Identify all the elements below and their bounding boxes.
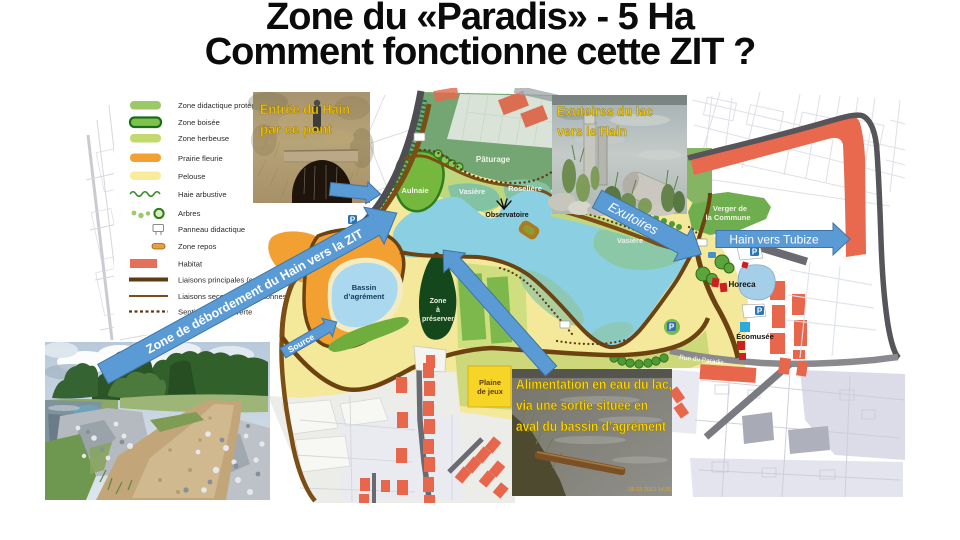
svg-text:Écomusée: Écomusée	[736, 332, 774, 341]
svg-text:06 03 2012 14:25: 06 03 2012 14:25	[629, 487, 672, 493]
svg-text:Pelouse: Pelouse	[178, 172, 205, 181]
svg-text:Vasière: Vasière	[459, 187, 485, 196]
svg-text:préserver: préserver	[422, 316, 454, 323]
svg-text:Bassin: Bassin	[352, 283, 377, 292]
svg-text:vers le Hain: vers le Hain	[557, 123, 627, 139]
svg-text:P: P	[752, 248, 758, 257]
svg-text:Plaine: Plaine	[479, 378, 501, 387]
svg-text:Prairie fleurie: Prairie fleurie	[178, 154, 223, 163]
svg-text:Zone boisée: Zone boisée	[178, 118, 220, 127]
svg-text:Horeca: Horeca	[728, 280, 756, 289]
svg-text:Zone repos: Zone repos	[178, 242, 217, 251]
svg-text:à: à	[436, 307, 440, 314]
svg-text:la Commune: la Commune	[705, 213, 750, 222]
svg-text:Observatoire: Observatoire	[485, 212, 528, 219]
svg-text:Roselière: Roselière	[508, 184, 542, 193]
svg-text:par ce pont: par ce pont	[260, 121, 332, 137]
svg-text:via une sortie située en: via une sortie située en	[516, 397, 648, 413]
svg-text:Entrée du Hain: Entrée du Hain	[260, 101, 350, 117]
svg-text:P: P	[757, 307, 763, 316]
svg-text:Verger de: Verger de	[713, 204, 747, 213]
svg-text:Hain vers Tubize: Hain vers Tubize	[729, 233, 819, 247]
svg-text:Aulnaie: Aulnaie	[401, 186, 428, 195]
svg-text:aval du bassin d’agrément: aval du bassin d’agrément	[516, 418, 666, 434]
svg-text:Pâturage: Pâturage	[476, 155, 511, 164]
svg-text:Arbres: Arbres	[178, 209, 201, 218]
svg-text:P: P	[669, 323, 675, 332]
svg-text:Haie arbustive: Haie arbustive	[178, 190, 227, 199]
svg-text:Vasière: Vasière	[617, 236, 643, 245]
svg-text:Panneau didactique: Panneau didactique	[178, 225, 245, 234]
svg-text:Zone herbeuse: Zone herbeuse	[178, 134, 229, 143]
svg-text:Zone: Zone	[430, 298, 447, 305]
svg-text:Habitat: Habitat	[178, 260, 203, 269]
svg-text:Alimentation en eau du lac,: Alimentation en eau du lac,	[516, 376, 672, 392]
svg-text:Exutoires du lac: Exutoires du lac	[557, 103, 653, 119]
svg-text:d’agrément: d’agrément	[344, 292, 385, 301]
svg-text:de jeux: de jeux	[477, 387, 504, 396]
